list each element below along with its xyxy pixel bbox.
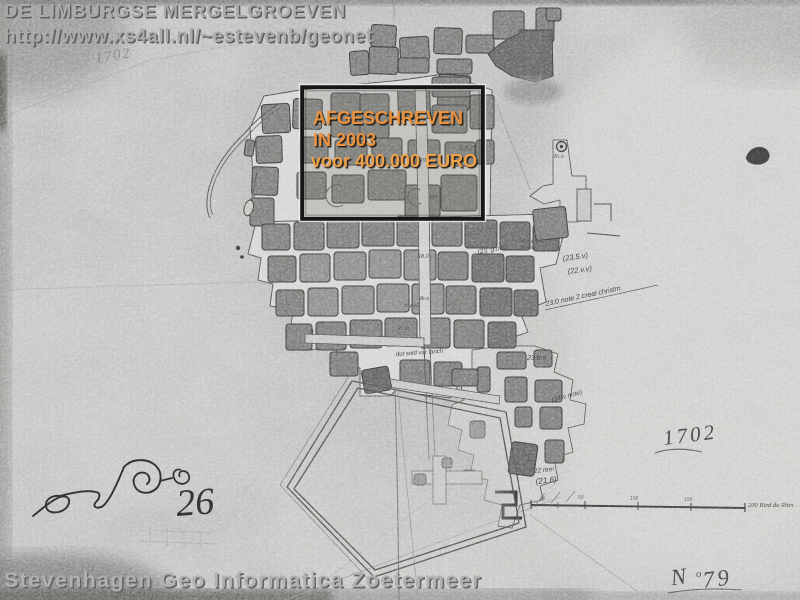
svg-text:IN 2003: IN 2003: [313, 130, 376, 150]
svg-text:http://www.xs4all.nl/~estevenb: http://www.xs4all.nl/~estevenb/geonet: [4, 26, 373, 47]
svg-text:voor 400.000 EURO: voor 400.000 EURO: [311, 151, 477, 171]
svg-text:AFGESCHREVEN: AFGESCHREVEN: [313, 108, 463, 128]
svg-text:Stevenhagen Geo Informatica Zo: Stevenhagen Geo Informatica Zoetermeer: [4, 568, 482, 592]
svg-text:DE LIMBURGSE MERGELGROEVEN: DE LIMBURGSE MERGELGROEVEN: [4, 0, 346, 21]
